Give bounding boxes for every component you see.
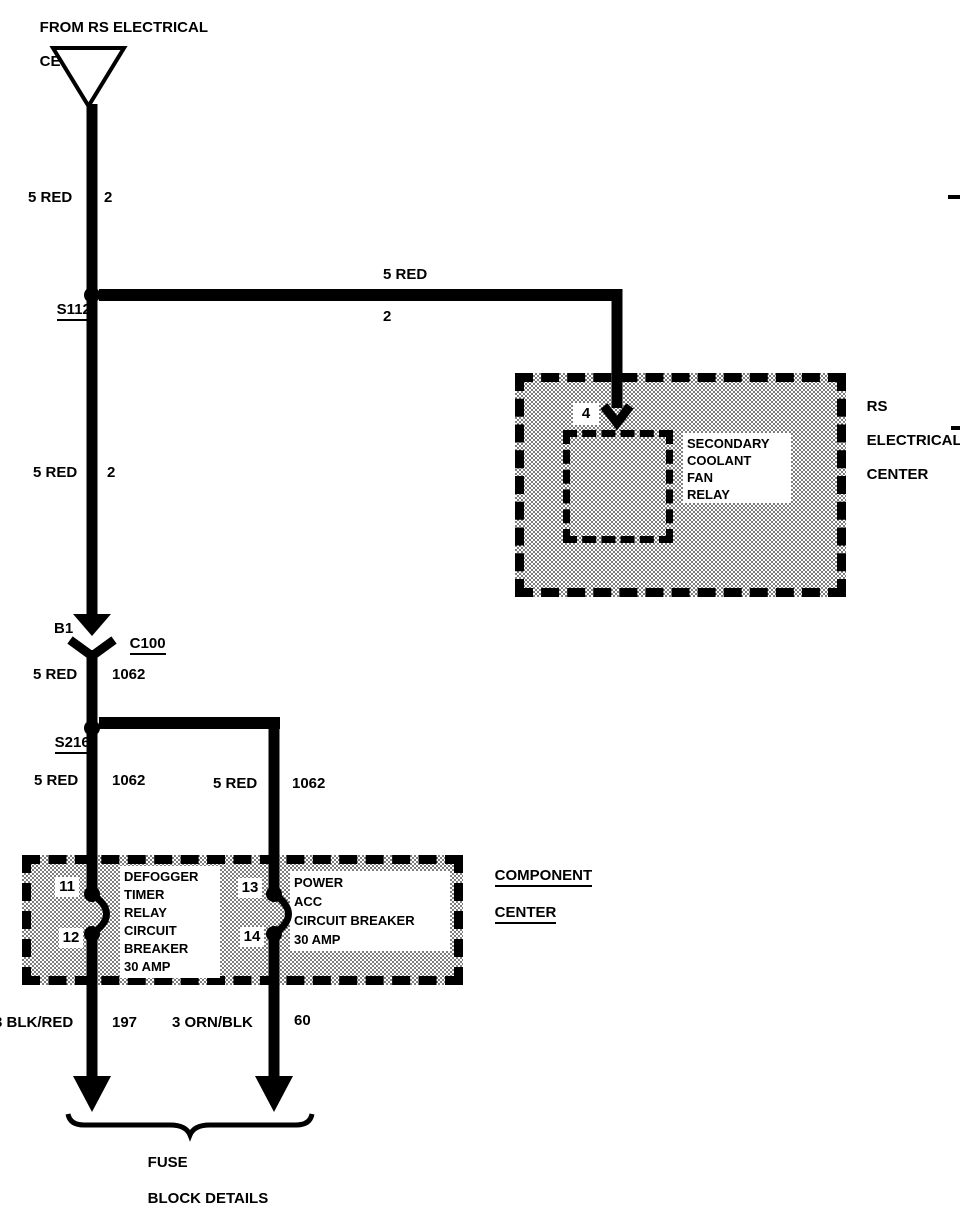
secondary-coolant-fan-relay-label: SECONDARY COOLANT FAN RELAY bbox=[683, 433, 791, 503]
outwire-left-color: 3 BLK/RED bbox=[0, 1014, 73, 1031]
wire1-color: 5 RED bbox=[28, 189, 72, 206]
terminal-4: 4 bbox=[573, 403, 599, 425]
outwire-right-circuit: 60 bbox=[294, 1012, 311, 1029]
rs-center-title: RS ELECTRICAL CENTER bbox=[850, 381, 960, 500]
connector-c100-icon bbox=[70, 614, 114, 656]
fuse-block-brace-icon bbox=[68, 1114, 312, 1135]
wire4r-color: 5 RED bbox=[213, 775, 257, 792]
terminal-12: 12 bbox=[59, 928, 83, 948]
wire1-circuit: 2 bbox=[104, 189, 112, 206]
wire-branch-horizontal bbox=[99, 289, 622, 301]
branch-wire-circuit: 2 bbox=[383, 308, 391, 325]
connector-c-letter: C bbox=[83, 60, 94, 77]
wire4r-circuit: 1062 bbox=[292, 775, 325, 792]
wire4l-circuit: 1062 bbox=[112, 772, 145, 789]
outwire-right-color: 3 ORN/BLK bbox=[172, 1014, 253, 1031]
splice-s216-label: S216 bbox=[38, 717, 90, 754]
secondary-coolant-fan-relay-outline bbox=[563, 430, 673, 543]
splice-s112-label: S112 bbox=[40, 284, 91, 321]
wire2-color: 5 RED bbox=[33, 464, 77, 481]
wire3-circuit: 1062 bbox=[112, 666, 145, 683]
power-acc-breaker-label: POWER ACC CIRCUIT BREAKER 30 AMP bbox=[290, 871, 450, 951]
defogger-breaker-label: DEFOGGER TIMER RELAY CIRCUIT BREAKER 30 … bbox=[120, 866, 220, 978]
terminal-11: 11 bbox=[55, 877, 79, 897]
fuse-block-details-label: FUSE BLOCK DETAILS bbox=[131, 1136, 268, 1226]
wire4l-color: 5 RED bbox=[34, 772, 78, 789]
connector-pin-b1: B1 bbox=[54, 620, 73, 637]
edge-tick-upper bbox=[948, 195, 960, 199]
connector-c100-label: C100 bbox=[113, 618, 166, 655]
wire-s216-branch-horizontal bbox=[99, 717, 280, 729]
from-source-label: FROM RS ELECTRICAL CENTER bbox=[23, 2, 208, 87]
branch-wire-color: 5 RED bbox=[383, 266, 427, 283]
terminal-14: 14 bbox=[240, 927, 264, 947]
component-center-title: COMPONENT CENTER bbox=[478, 850, 592, 941]
wiring-diagram: SECONDARY COOLANT FAN RELAY 4 DEFOGGER T… bbox=[0, 0, 960, 1232]
wire3-color: 5 RED bbox=[33, 666, 77, 683]
outwire-left-circuit: 197 bbox=[112, 1014, 137, 1031]
terminal-13: 13 bbox=[238, 878, 262, 898]
wire-main-upper bbox=[87, 104, 98, 614]
wire2-circuit: 2 bbox=[107, 464, 115, 481]
